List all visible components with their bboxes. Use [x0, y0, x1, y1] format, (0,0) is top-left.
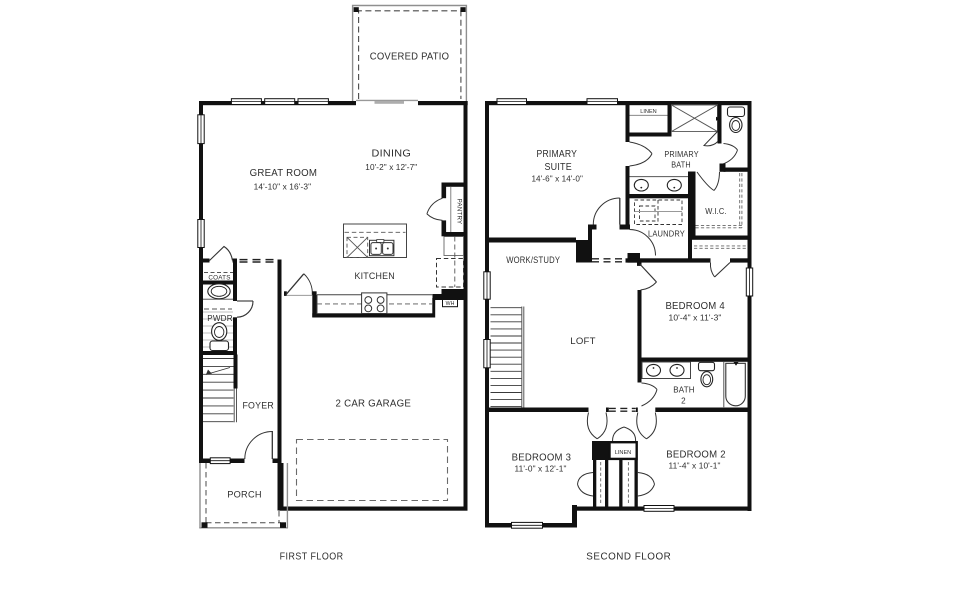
svg-text:BEDROOM 3: BEDROOM 3 — [512, 453, 572, 464]
svg-text:BATH: BATH — [673, 386, 695, 395]
svg-text:14'-10" x 16'-3": 14'-10" x 16'-3" — [254, 182, 312, 192]
svg-text:WH: WH — [446, 301, 455, 307]
svg-text:LINEN: LINEN — [615, 450, 631, 456]
svg-text:PRIMARY: PRIMARY — [664, 150, 699, 159]
svg-text:2: 2 — [681, 397, 686, 406]
svg-text:10'-2" x 12'-7": 10'-2" x 12'-7" — [365, 162, 417, 172]
svg-text:KITCHEN: KITCHEN — [354, 271, 395, 282]
svg-text:SECOND FLOOR: SECOND FLOOR — [586, 552, 671, 563]
svg-text:BEDROOM 2: BEDROOM 2 — [666, 450, 726, 461]
svg-text:WORK/STUDY: WORK/STUDY — [506, 255, 560, 266]
svg-text:W.I.C.: W.I.C. — [705, 207, 727, 216]
svg-text:PRIMARY: PRIMARY — [537, 149, 578, 160]
svg-text:FOYER: FOYER — [242, 401, 274, 412]
svg-text:PORCH: PORCH — [227, 490, 262, 501]
svg-text:10'-4" x 11'-3": 10'-4" x 11'-3" — [669, 313, 722, 323]
svg-text:BATH: BATH — [671, 161, 691, 170]
svg-text:14'-6" x 14'-0": 14'-6" x 14'-0" — [531, 174, 583, 184]
svg-text:SUITE: SUITE — [544, 162, 572, 173]
svg-text:LOFT: LOFT — [570, 336, 596, 347]
svg-text:FIRST FLOOR: FIRST FLOOR — [280, 552, 344, 563]
svg-text:PANTRY: PANTRY — [456, 199, 463, 225]
svg-text:11'-0" x 12'-1": 11'-0" x 12'-1" — [515, 464, 567, 474]
svg-text:BEDROOM 4: BEDROOM 4 — [665, 301, 725, 312]
svg-text:GREAT ROOM: GREAT ROOM — [250, 168, 318, 179]
svg-text:2 CAR GARAGE: 2 CAR GARAGE — [336, 399, 412, 410]
svg-text:COVERED PATIO: COVERED PATIO — [370, 52, 450, 63]
svg-text:COATS: COATS — [208, 275, 230, 282]
svg-text:PWDR: PWDR — [207, 314, 233, 323]
svg-text:LAUNDRY: LAUNDRY — [648, 230, 685, 239]
svg-text:11'-4" x 10'-1": 11'-4" x 10'-1" — [669, 461, 721, 471]
svg-text:LINEN: LINEN — [640, 109, 656, 115]
svg-text:DINING: DINING — [372, 149, 412, 160]
